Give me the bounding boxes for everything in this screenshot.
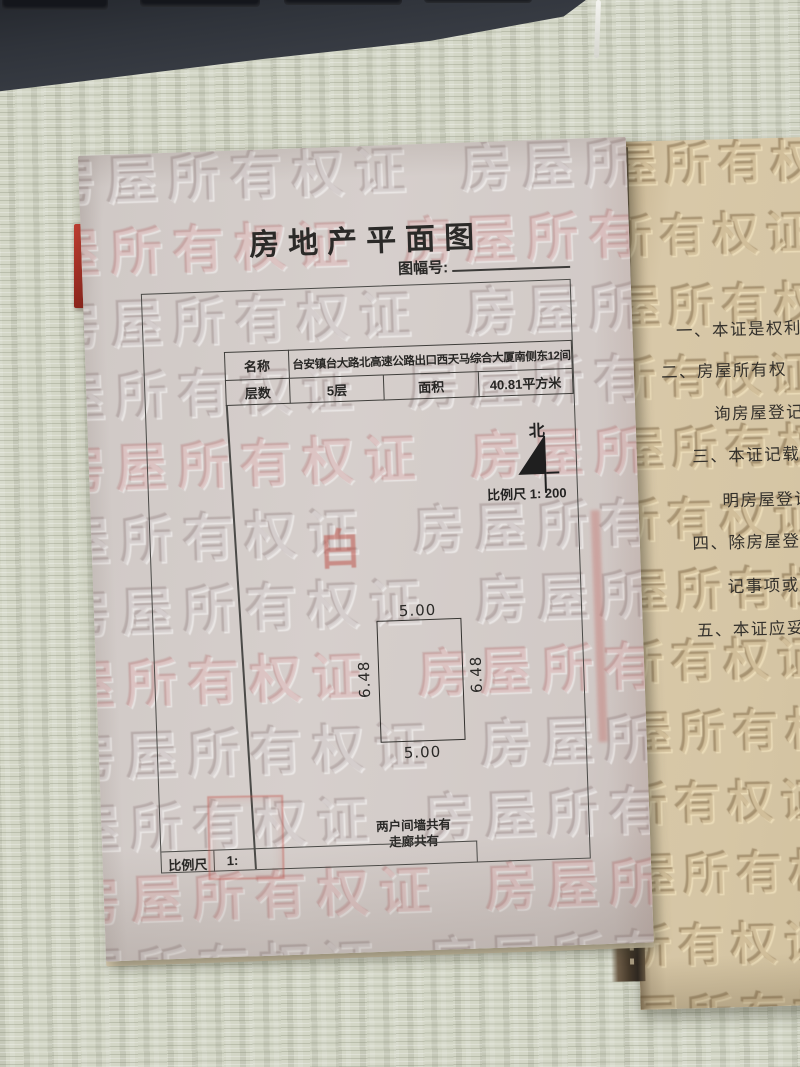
photo-scene: 房屋所有权证 房屋所有权证 房屋所有权证 房屋所有权证房屋所有权证 房屋所有权证… bbox=[0, 0, 800, 1067]
floor-plan-rectangle bbox=[376, 618, 465, 743]
watermark-row: 房屋所有权证 房屋所有权证 房屋所有权证 房屋所有权证 bbox=[618, 168, 800, 270]
map-sheet-label: 图幅号: bbox=[398, 259, 449, 278]
clause-line: 一、本证是权利 bbox=[676, 314, 800, 341]
scale-text: 比例尺 1: 200 bbox=[487, 482, 567, 504]
keyboard-key bbox=[2, 0, 108, 10]
plan-frame: 名称 台安镇台大路北高速公路出口西天马综合大厦南侧东12间 层数 5层 面积 4… bbox=[141, 279, 591, 874]
clause-line: 三、本证记载的 bbox=[692, 440, 800, 467]
keyboard-key bbox=[140, 0, 260, 7]
north-arrow-icon bbox=[517, 436, 545, 475]
clause-line: 二、房屋所有权 bbox=[661, 356, 788, 383]
map-sheet-blank-line bbox=[452, 266, 570, 272]
area-value-cell: 40.81平方米 bbox=[478, 368, 573, 396]
clause-line: 明房屋登记 bbox=[722, 485, 800, 511]
clause-line: 四、除房屋登记 bbox=[692, 527, 800, 554]
property-info-table: 名称 台安镇台大路北高速公路出口西天马综合大厦南侧东12间 层数 5层 面积 4… bbox=[224, 340, 574, 406]
red-stamp-character: 白 bbox=[318, 515, 362, 577]
floors-label-cell: 层数 bbox=[225, 378, 290, 405]
watermark-row: 房屋所有权证 房屋所有权证 房屋所有权证 房屋所有权证 bbox=[618, 137, 800, 197]
keyboard-key bbox=[424, 0, 532, 3]
dimension-bottom: 5.00 bbox=[381, 742, 465, 763]
area-label-cell: 面积 bbox=[384, 372, 479, 400]
dimension-top: 5.00 bbox=[376, 600, 460, 621]
clause-line: 询房屋登记 bbox=[714, 398, 800, 424]
dimension-right: 6.48 bbox=[467, 650, 487, 699]
floors-value-cell: 5层 bbox=[289, 375, 384, 403]
north-arrow-tick bbox=[546, 471, 559, 473]
scale-footer-label: 比例尺 bbox=[161, 851, 215, 874]
clause-line: 五、本证应妥 bbox=[696, 614, 800, 641]
red-stamp-bleed bbox=[591, 510, 608, 742]
watermark-row: 房屋所有权证 房屋所有权证 房屋所有权证 房屋所有权证 bbox=[618, 594, 800, 696]
name-label-cell: 名称 bbox=[224, 350, 289, 380]
dimension-left: 6.48 bbox=[355, 655, 375, 704]
clause-line: 记事项或 bbox=[727, 571, 800, 597]
keyboard-key bbox=[284, 0, 402, 5]
red-stamp-outline bbox=[207, 795, 284, 880]
floor-plan-page: 房屋所有权证 房屋所有权证 房屋所有权证 房屋所有权证房屋所有权证 房屋所有权证… bbox=[78, 137, 654, 962]
